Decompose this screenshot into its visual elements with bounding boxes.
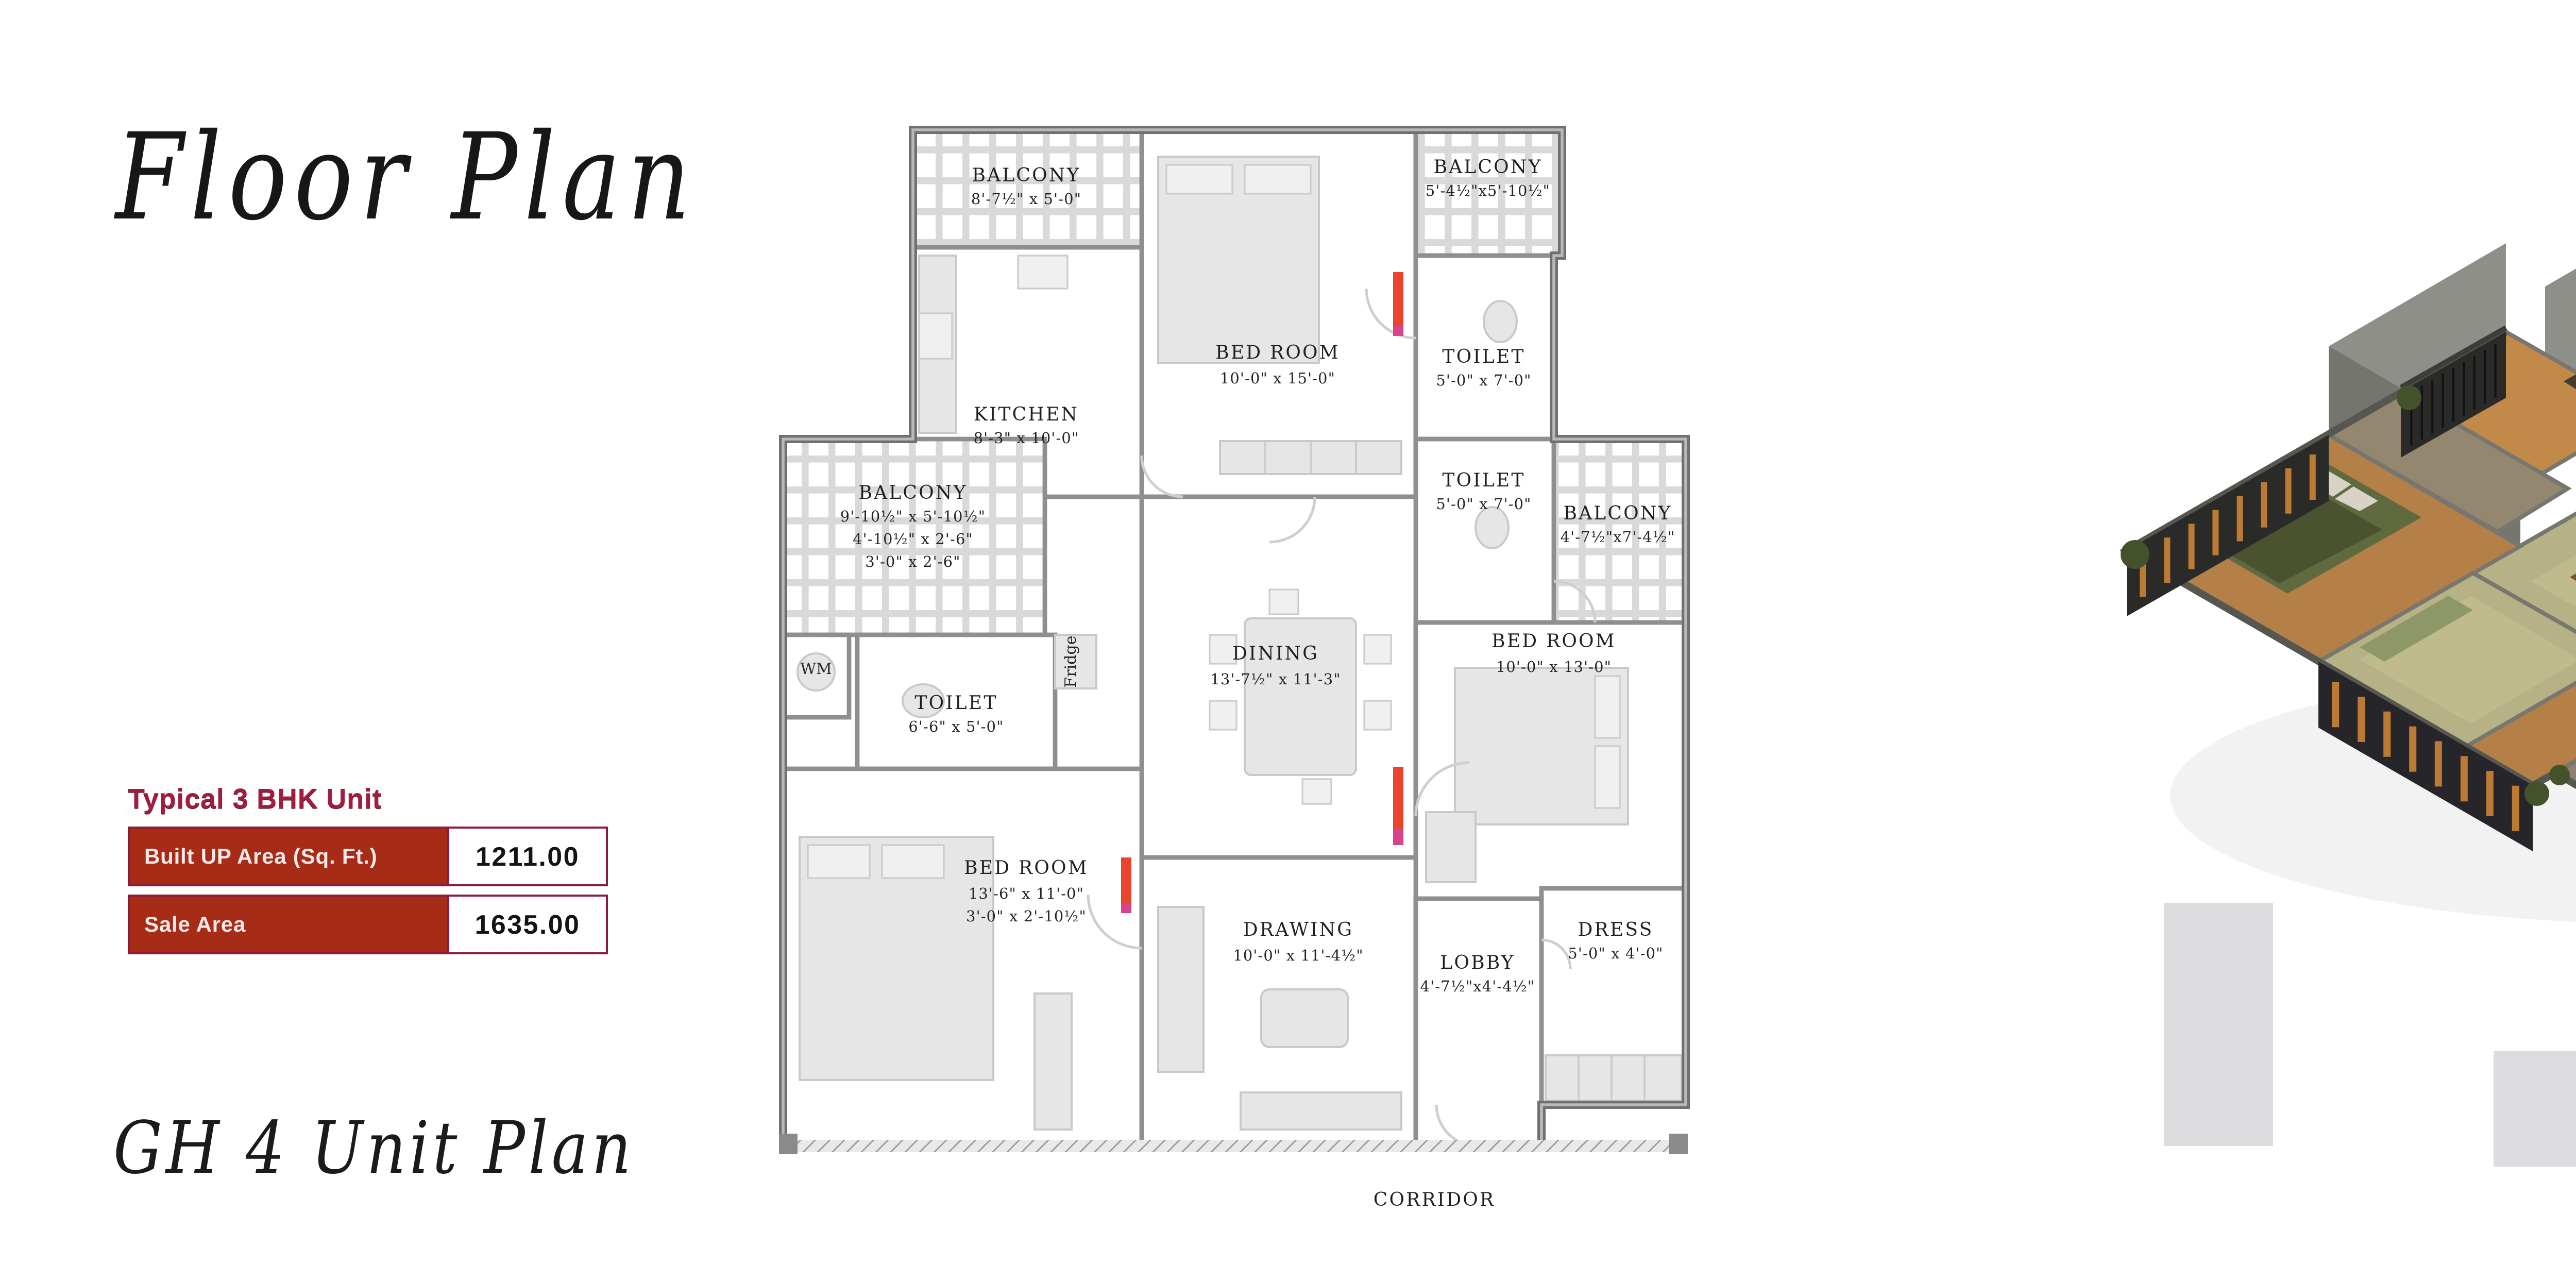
chair	[1364, 635, 1391, 664]
plant	[2549, 765, 2570, 785]
room-dim: 5'-0" x 7'-0"	[1436, 372, 1531, 389]
sofa	[1158, 907, 1204, 1072]
room-dim: 10'-0" x 15'-0"	[1220, 369, 1335, 387]
room-label: BALCONY	[1563, 503, 1672, 524]
plant	[2397, 385, 2421, 410]
wall-stub	[779, 1134, 798, 1154]
room-label: Fridge	[1062, 636, 1080, 688]
room-label: KITCHEN	[974, 404, 1079, 425]
wall-stub	[1669, 1134, 1688, 1154]
room-dim: 3'-0" x 2'-10½"	[966, 907, 1087, 925]
pillow	[1245, 165, 1311, 194]
table-row: Built UP Area (Sq. Ft.) 1211.00	[128, 827, 608, 886]
coffee-table	[1261, 989, 1348, 1047]
chair	[1364, 701, 1391, 730]
floor-plan-page: Floor Plan Typical 3 BHK Unit Built UP A…	[0, 0, 2576, 1280]
pillow	[882, 845, 944, 878]
unit-info-panel: Typical 3 BHK Unit Built UP Area (Sq. Ft…	[128, 783, 622, 963]
room-dim: 6'-6" x 5'-0"	[908, 718, 1004, 735]
kitchen-sink	[1018, 256, 1067, 289]
room-dim: 10'-0" x 13'-0"	[1496, 658, 1612, 676]
corridor-label: CORRIDOR	[1374, 1189, 1496, 1210]
wc	[1476, 507, 1509, 548]
room-label: BALCONY	[1433, 157, 1542, 178]
room-dim: 5'-0" x 4'-0"	[1568, 945, 1663, 962]
pillow	[1595, 676, 1620, 738]
sofa	[1241, 1092, 1401, 1130]
floor-plan-3d-render	[2036, 115, 2576, 1187]
dress-wardrobe	[1546, 1055, 1682, 1101]
room-dim: 5'-0" x 7'-0"	[1436, 495, 1531, 513]
floor-plan-2d: BALCONY 8'-7½" x 5'-0" KITCHEN 8'-3" x 1…	[775, 115, 1743, 1239]
desk	[1426, 812, 1476, 882]
room-label: BED ROOM	[1215, 342, 1340, 363]
room-dim: 13'-6" x 11'-0"	[969, 885, 1084, 902]
table-row: Sale Area 1635.00	[128, 895, 608, 954]
room-dim: 13'-7½" x 11'-3"	[1210, 670, 1341, 688]
sale-area-value: 1635.00	[447, 897, 606, 952]
builtup-area-label: Built UP Area (Sq. Ft.)	[130, 829, 447, 884]
unit-plan-caption: GH 4 Unit Plan	[113, 1109, 635, 1191]
chair	[1210, 701, 1236, 730]
room-dim: 3'-0" x 2'-6"	[865, 553, 960, 570]
room-label: DINING	[1232, 643, 1319, 664]
room-dim: 8'-3" x 10'-0"	[974, 429, 1079, 447]
wc	[1484, 301, 1517, 342]
room-label: BALCONY	[858, 482, 967, 503]
chair	[1269, 590, 1298, 614]
room-label: TOILET	[1442, 346, 1525, 367]
room-dim: 8'-7½" x 5'-0"	[971, 190, 1081, 208]
plant	[2524, 781, 2549, 806]
unit-type-heading: Typical 3 BHK Unit	[128, 783, 622, 814]
plant	[2121, 540, 2149, 569]
room-dim: 4'-7½"x7'-4½"	[1561, 528, 1675, 546]
room-dim: 5'-4½"x5'-10½"	[1426, 182, 1550, 199]
room-label: TOILET	[1442, 470, 1525, 491]
room-dim: 4'-10½" x 2'-6"	[853, 530, 973, 548]
room-label: WM	[800, 660, 832, 678]
pillow	[1595, 746, 1620, 808]
bottom-wall-hatch	[783, 1140, 1686, 1152]
room-balcony-topleft	[913, 130, 1142, 247]
room-dim: 10'-0" x 11'-4½"	[1233, 947, 1363, 964]
room-label: DRESS	[1578, 919, 1654, 940]
room-label: LOBBY	[1440, 952, 1515, 973]
builtup-area-value: 1211.00	[447, 829, 606, 884]
room-label: DRAWING	[1243, 919, 1353, 940]
room-label: BED ROOM	[1492, 631, 1616, 652]
sale-area-label: Sale Area	[130, 897, 447, 952]
wardrobe	[1035, 993, 1072, 1130]
dining-table	[1245, 618, 1356, 775]
chair	[1302, 779, 1331, 804]
room-label: BALCONY	[972, 165, 1080, 186]
pillow	[1166, 165, 1232, 194]
room-label: TOILET	[914, 693, 997, 714]
room-dim: 4'-7½"x4'-4½"	[1420, 978, 1535, 995]
stove	[919, 313, 952, 359]
room-dim: 9'-10½" x 5'-10½"	[840, 508, 986, 525]
pillow	[808, 845, 870, 878]
page-title: Floor Plan	[115, 107, 697, 247]
room-lobby	[1416, 899, 1541, 1146]
room-label: BED ROOM	[964, 857, 1089, 879]
